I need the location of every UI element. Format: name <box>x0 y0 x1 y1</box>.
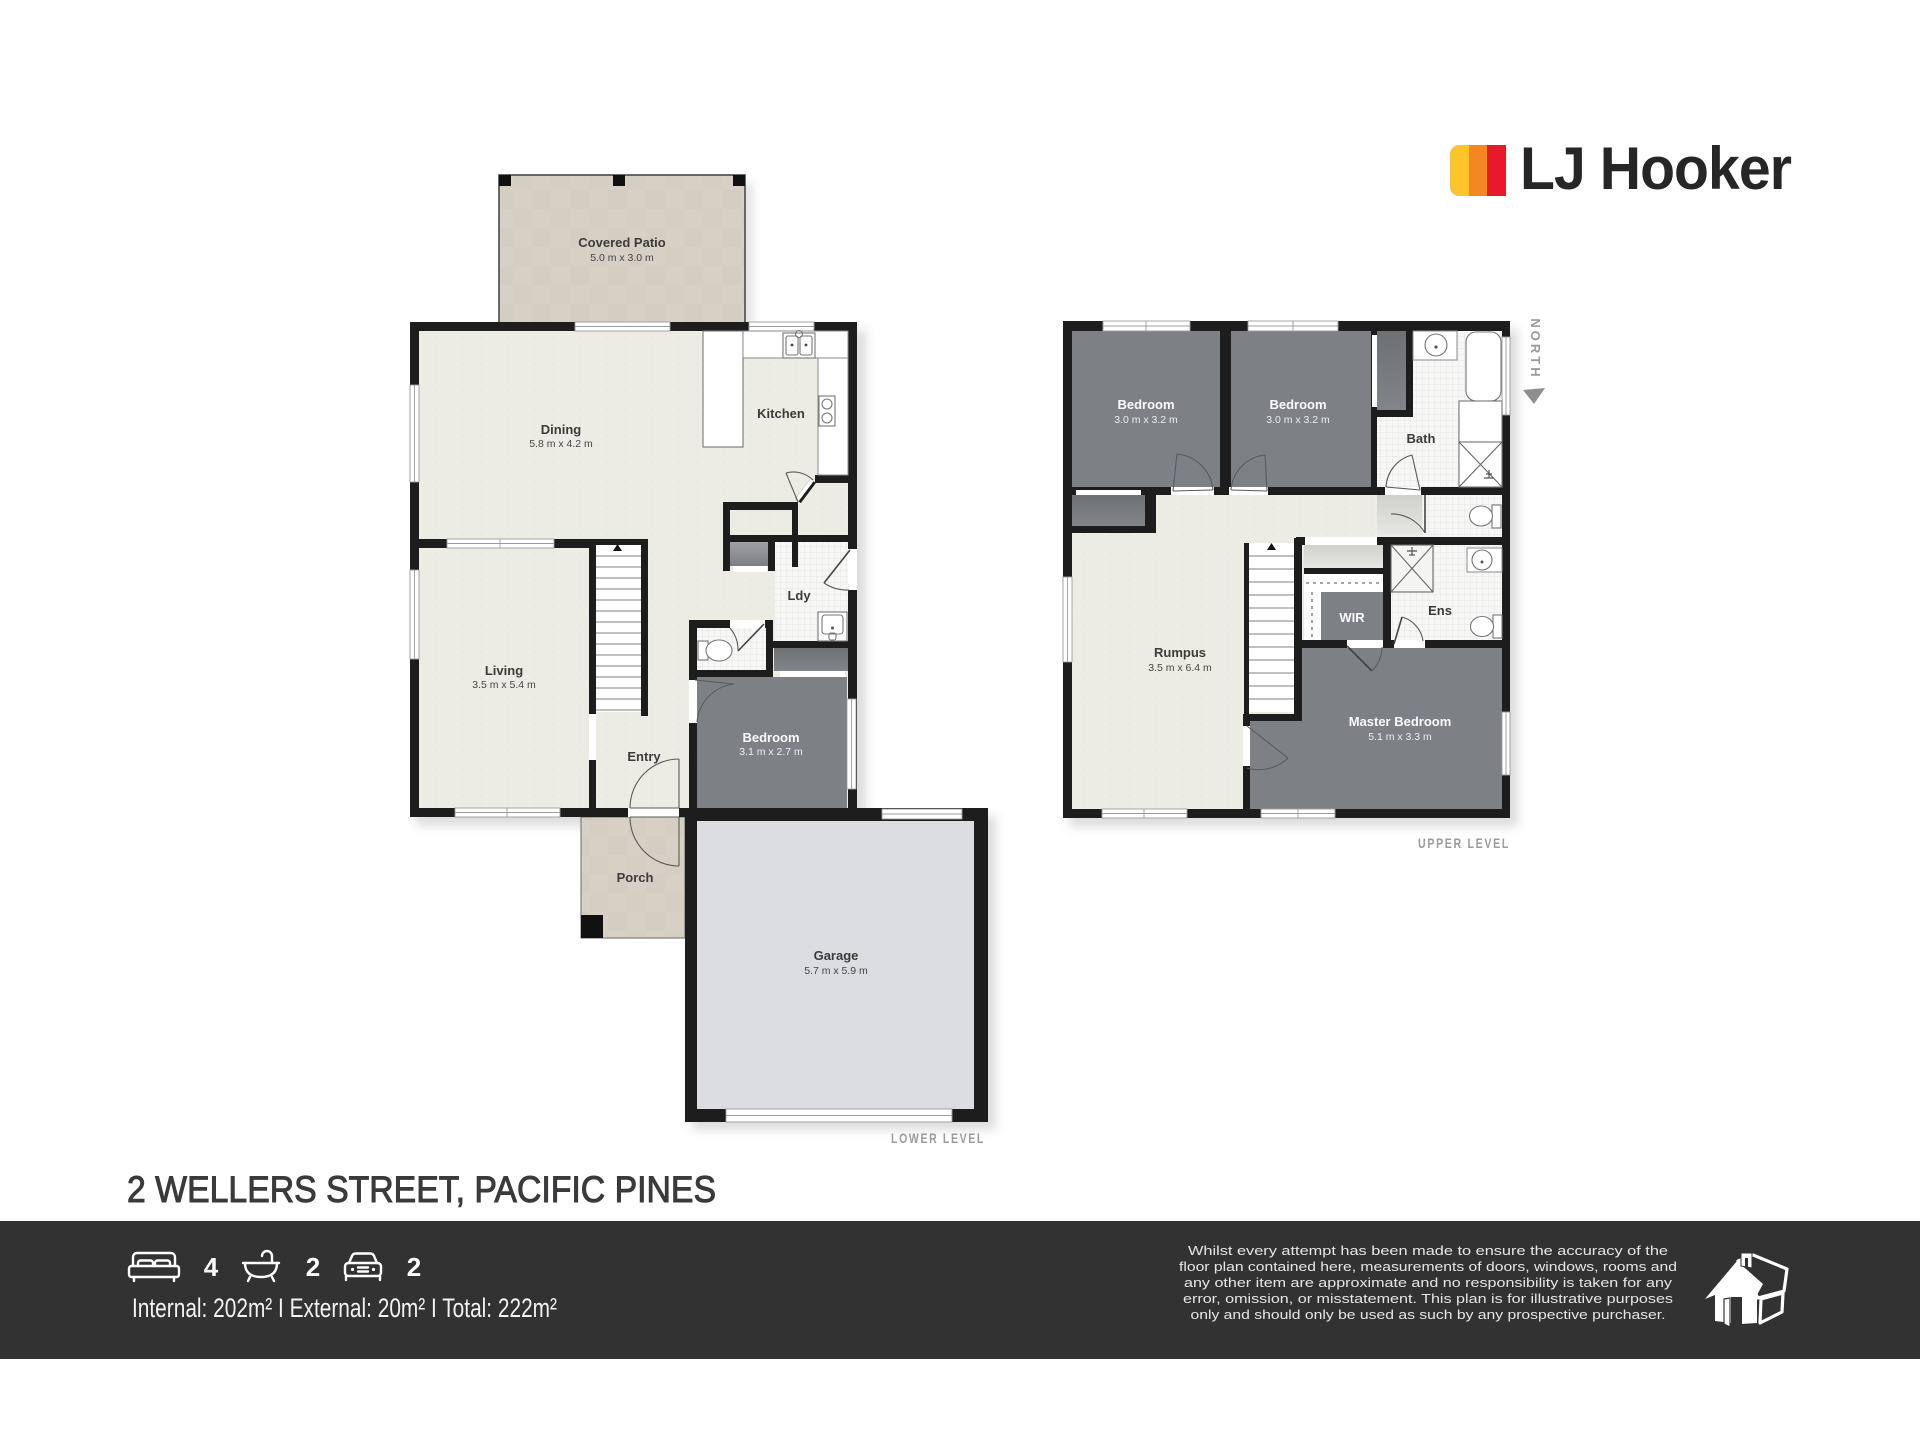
svg-text:Garage: Garage <box>814 948 859 963</box>
svg-text:LOWER LEVEL: LOWER LEVEL <box>891 1130 985 1146</box>
svg-text:3.5 m x 5.4 m: 3.5 m x 5.4 m <box>472 679 536 691</box>
svg-text:LJ Hooker: LJ Hooker <box>1520 135 1792 202</box>
svg-text:Porch: Porch <box>617 870 654 885</box>
svg-text:floor plan contained here, mea: floor plan contained here, measurements … <box>1179 1260 1677 1274</box>
svg-text:UPPER LEVEL: UPPER LEVEL <box>1418 835 1510 851</box>
svg-text:error, omission, or misstateme: error, omission, or misstatement. This p… <box>1183 1292 1673 1306</box>
svg-text:Whilst every attempt has been: Whilst every attempt has been made to en… <box>1188 1244 1668 1258</box>
svg-text:Kitchen: Kitchen <box>757 406 805 421</box>
svg-text:Internal: 202m² I External: 20: Internal: 202m² I External: 20m² I Total… <box>132 1293 557 1323</box>
svg-text:Bath: Bath <box>1407 431 1436 446</box>
svg-text:3.0 m x 3.2 m: 3.0 m x 3.2 m <box>1114 414 1178 426</box>
svg-text:Master Bedroom: Master Bedroom <box>1349 714 1452 729</box>
svg-text:NORTH: NORTH <box>1528 318 1543 379</box>
svg-text:Dining: Dining <box>541 422 581 437</box>
svg-text:only and should only be used a: only and should only be used as such by … <box>1191 1308 1666 1322</box>
svg-text:3.1 m x 2.7 m: 3.1 m x 2.7 m <box>739 746 803 758</box>
svg-text:Bedroom: Bedroom <box>742 730 799 745</box>
svg-text:WIR: WIR <box>1339 610 1365 625</box>
svg-text:5.8 m x 4.2 m: 5.8 m x 4.2 m <box>529 438 593 450</box>
svg-text:Bedroom: Bedroom <box>1269 397 1326 412</box>
svg-text:3.5 m x 6.4 m: 3.5 m x 6.4 m <box>1148 662 1212 674</box>
svg-text:4: 4 <box>204 1252 219 1282</box>
svg-text:5.0 m x 3.0 m: 5.0 m x 3.0 m <box>590 252 654 264</box>
svg-text:Covered Patio: Covered Patio <box>578 235 665 250</box>
svg-text:Entry: Entry <box>627 749 661 764</box>
svg-text:5.1 m x 3.3 m: 5.1 m x 3.3 m <box>1368 731 1432 743</box>
svg-text:2: 2 <box>306 1252 320 1282</box>
svg-text:Bedroom: Bedroom <box>1117 397 1174 412</box>
svg-text:any other item are approximate: any other item are approximate and no re… <box>1184 1276 1673 1290</box>
svg-text:2 WELLERS STREET, PACIFIC PINE: 2 WELLERS STREET, PACIFIC PINES <box>127 1169 716 1210</box>
svg-text:3.0 m x 3.2 m: 3.0 m x 3.2 m <box>1266 414 1330 426</box>
svg-text:Ldy: Ldy <box>787 588 811 603</box>
svg-text:5.7 m x 5.9 m: 5.7 m x 5.9 m <box>804 965 868 977</box>
svg-text:Rumpus: Rumpus <box>1154 645 1206 660</box>
svg-text:2: 2 <box>407 1252 421 1282</box>
svg-text:Ens: Ens <box>1428 603 1452 618</box>
svg-text:Living: Living <box>485 663 523 678</box>
